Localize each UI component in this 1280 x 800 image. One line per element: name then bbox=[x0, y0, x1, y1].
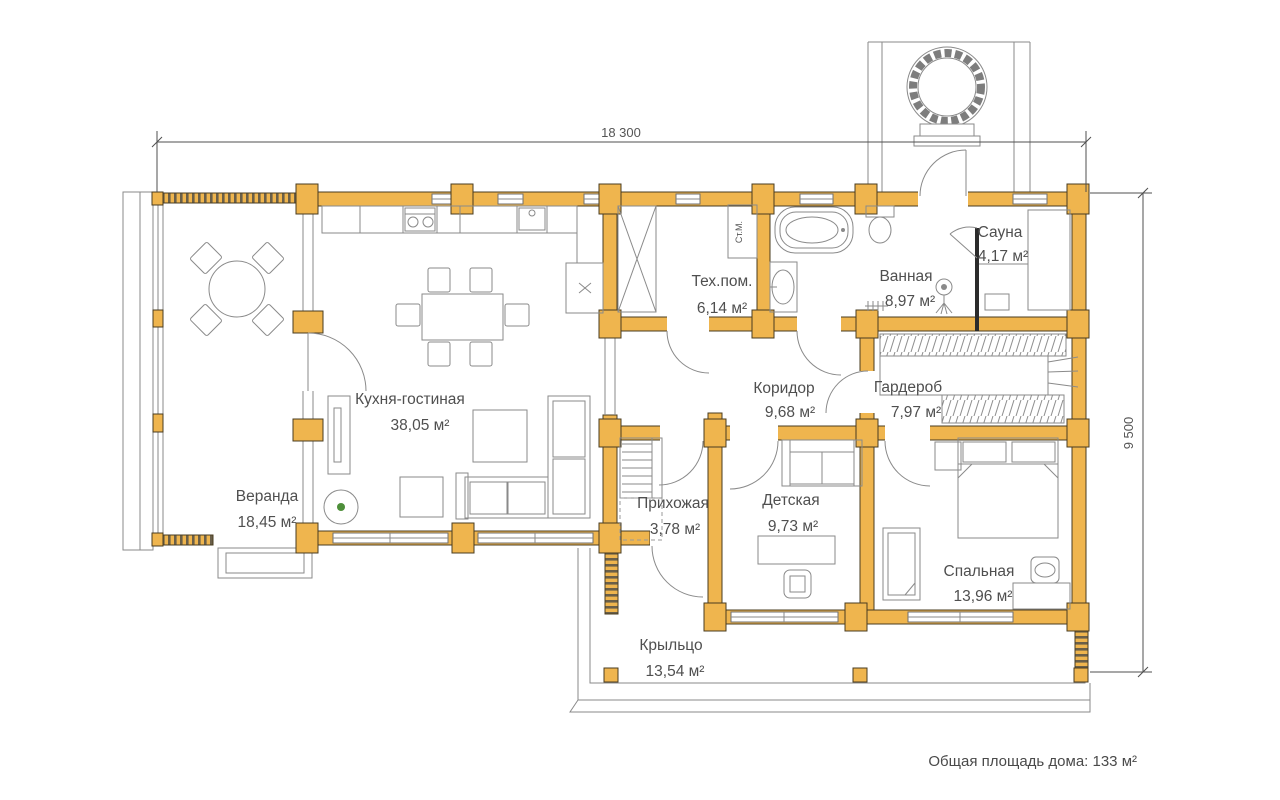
room-area-corridor: 9,68 м² bbox=[765, 404, 815, 421]
washing-machine-label: Ст.М. bbox=[734, 221, 744, 243]
floor-plan-drawing: 18 300 9 500 Веранда 18,45 м² Кухня-гост… bbox=[0, 0, 1280, 800]
desk-chair bbox=[784, 570, 811, 598]
porch-side-steps bbox=[1075, 630, 1088, 668]
clothes-rail bbox=[880, 334, 1066, 356]
plant bbox=[337, 503, 345, 511]
ottoman bbox=[473, 410, 527, 462]
dining-table bbox=[422, 294, 503, 340]
round-table bbox=[209, 261, 265, 317]
double-bed bbox=[958, 438, 1058, 538]
room-area-kitchen-living: 38,05 м² bbox=[391, 417, 450, 434]
furniture-bedroom bbox=[883, 438, 1070, 609]
bedside-table bbox=[935, 442, 961, 470]
porch-post bbox=[604, 668, 618, 682]
floor-plan-page: 18 300 9 500 Веранда 18,45 м² Кухня-гост… bbox=[0, 0, 1280, 800]
room-area-sauna: 4,17 м² bbox=[978, 248, 1028, 265]
veranda-rail-bottom bbox=[157, 535, 213, 545]
room-area-utility: 6,14 м² bbox=[697, 300, 747, 317]
room-area-wardrobe: 7,97 м² bbox=[891, 404, 941, 421]
room-area-kids-room: 9,73 м² bbox=[768, 518, 818, 535]
sauna-heater bbox=[985, 294, 1009, 310]
walls bbox=[152, 184, 1089, 682]
room-area-porch: 13,54 м² bbox=[646, 663, 705, 680]
hot-tub bbox=[907, 47, 987, 127]
stove bbox=[405, 208, 435, 231]
room-label-bathroom: Ванная bbox=[879, 268, 932, 285]
room-label-kitchen-living: Кухня-гостиная bbox=[355, 391, 465, 408]
furniture-veranda bbox=[190, 242, 285, 337]
clothes-rail bbox=[942, 395, 1064, 423]
crib bbox=[883, 528, 920, 600]
total-area-note: Общая площадь дома: 133 м² bbox=[928, 753, 1137, 770]
veranda-side-deck bbox=[123, 192, 153, 550]
room-label-kids-room: Детская bbox=[762, 492, 819, 509]
room-label-wardrobe: Гардероб bbox=[874, 379, 942, 396]
porch-post bbox=[853, 668, 867, 682]
room-area-hallway: 3,78 м² bbox=[650, 521, 700, 538]
furniture-kitchen-living bbox=[322, 206, 603, 524]
desk bbox=[758, 536, 835, 564]
dimension-depth-label: 9 500 bbox=[1121, 417, 1136, 450]
room-area-bedroom: 13,96 м² bbox=[954, 588, 1013, 605]
tub-step bbox=[920, 124, 974, 136]
tub-room bbox=[868, 42, 1030, 192]
dimension-width-label: 18 300 bbox=[601, 125, 641, 140]
coffee-table bbox=[400, 477, 443, 517]
room-label-corridor: Коридор bbox=[753, 380, 814, 397]
room-area-bathroom: 8,97 м² bbox=[885, 293, 935, 310]
room-label-porch: Крыльцо bbox=[639, 637, 702, 654]
porch-post bbox=[1074, 668, 1088, 682]
room-label-veranda: Веранда bbox=[236, 488, 299, 505]
room-label-bedroom: Спальная bbox=[944, 563, 1015, 580]
entry-side-steps bbox=[605, 550, 618, 614]
room-label-utility: Тех.пом. bbox=[692, 273, 753, 290]
room-label-hallway: Прихожая bbox=[637, 495, 709, 512]
sauna-bench bbox=[1028, 210, 1070, 310]
room-label-sauna: Сауна bbox=[978, 224, 1023, 241]
dresser bbox=[1013, 583, 1070, 609]
room-area-veranda: 18,45 м² bbox=[238, 514, 297, 531]
kitchen-sink bbox=[519, 208, 545, 230]
veranda-rail-top bbox=[157, 193, 297, 203]
